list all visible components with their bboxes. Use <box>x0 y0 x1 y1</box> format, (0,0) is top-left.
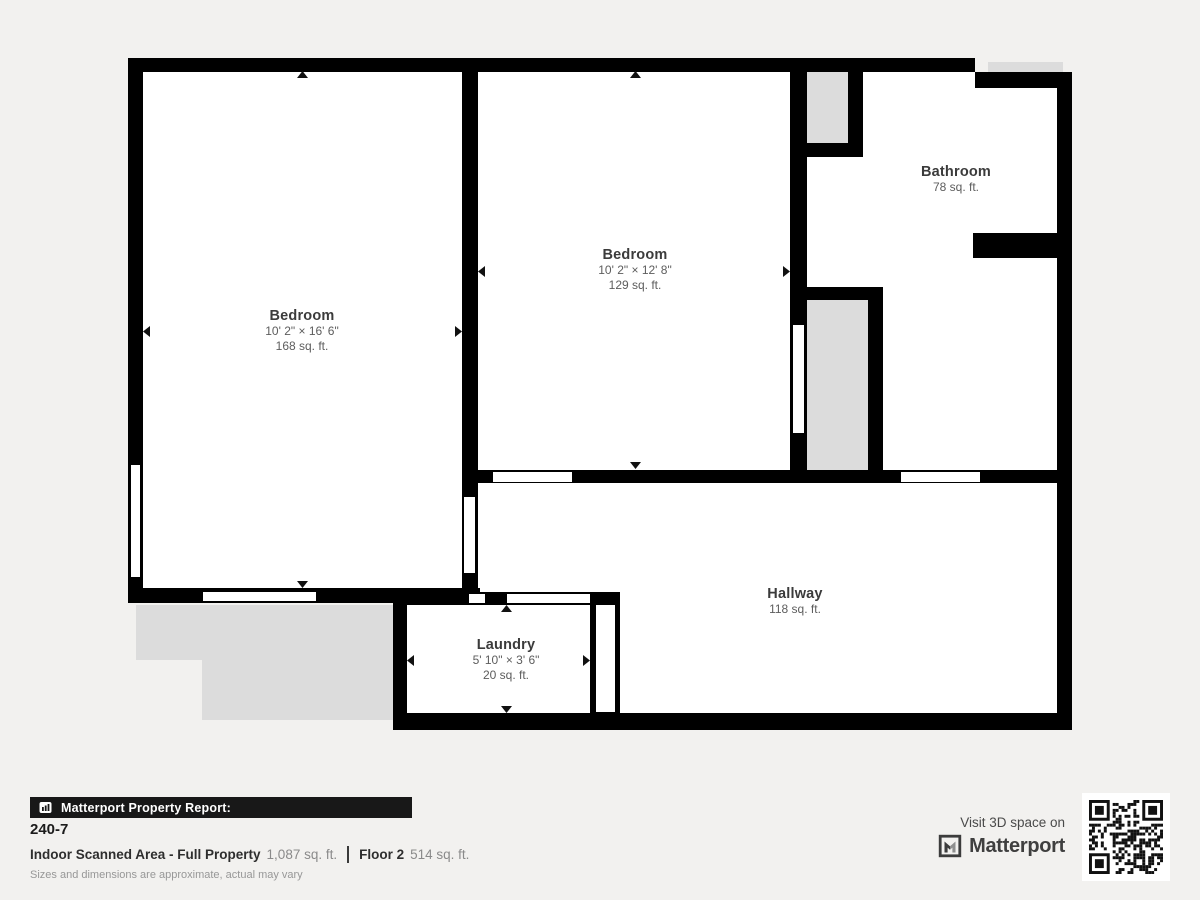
unscanned-area-bottom-left-2 <box>202 660 393 720</box>
door-bathroom <box>901 472 980 482</box>
report-banner: Matterport Property Report: <box>30 797 412 818</box>
building-icon <box>39 801 52 814</box>
scanned-area-stats: Indoor Scanned Area - Full Property 1,08… <box>30 846 469 863</box>
door-bedroom-2-closet <box>793 325 804 433</box>
qr-code <box>1082 793 1170 881</box>
floor-plan <box>0 0 1200 760</box>
door-bedroom-2 <box>493 472 572 482</box>
stats-divider <box>347 846 349 863</box>
window-bedroom-1-bottom <box>203 592 316 601</box>
floor-value: 514 sq. ft. <box>410 847 469 862</box>
matterport-promo: Visit 3D space on Matterport <box>845 815 1065 858</box>
floor-label: Floor 2 <box>359 847 404 862</box>
matterport-brand-row: Matterport <box>845 834 1065 858</box>
qr-code-pattern <box>1089 800 1163 874</box>
unscanned-closet-bedroom-2 <box>807 300 868 470</box>
door-laundry-top <box>507 594 590 603</box>
matterport-wordmark: Matterport <box>969 835 1065 858</box>
room-floor-hallway <box>462 483 1072 730</box>
matterport-logo-icon <box>938 834 962 858</box>
report-banner-title: Matterport Property Report: <box>61 801 231 815</box>
property-id: 240-7 <box>30 821 68 838</box>
disclaimer-text: Sizes and dimensions are approximate, ac… <box>30 869 303 881</box>
property-report-page: Bedroom 10' 2" × 16' 6" 168 sq. ft. Bedr… <box>0 0 1200 900</box>
room-floor-bedroom-2 <box>462 72 807 483</box>
unscanned-strip-top-right <box>988 62 1063 72</box>
indoor-area-label: Indoor Scanned Area - Full Property <box>30 847 261 862</box>
door-laundry-side <box>596 605 615 712</box>
indoor-area-value: 1,087 sq. ft. <box>267 847 338 862</box>
room-floor-bedroom-1 <box>128 72 480 603</box>
door-bedroom-1 <box>464 497 475 573</box>
visit-3d-text: Visit 3D space on <box>845 815 1065 831</box>
unscanned-area-bottom-left <box>136 605 393 660</box>
unscanned-closet-top <box>807 72 848 143</box>
opening-hallway-corner <box>469 594 485 603</box>
window-bedroom-1-left <box>131 465 140 577</box>
